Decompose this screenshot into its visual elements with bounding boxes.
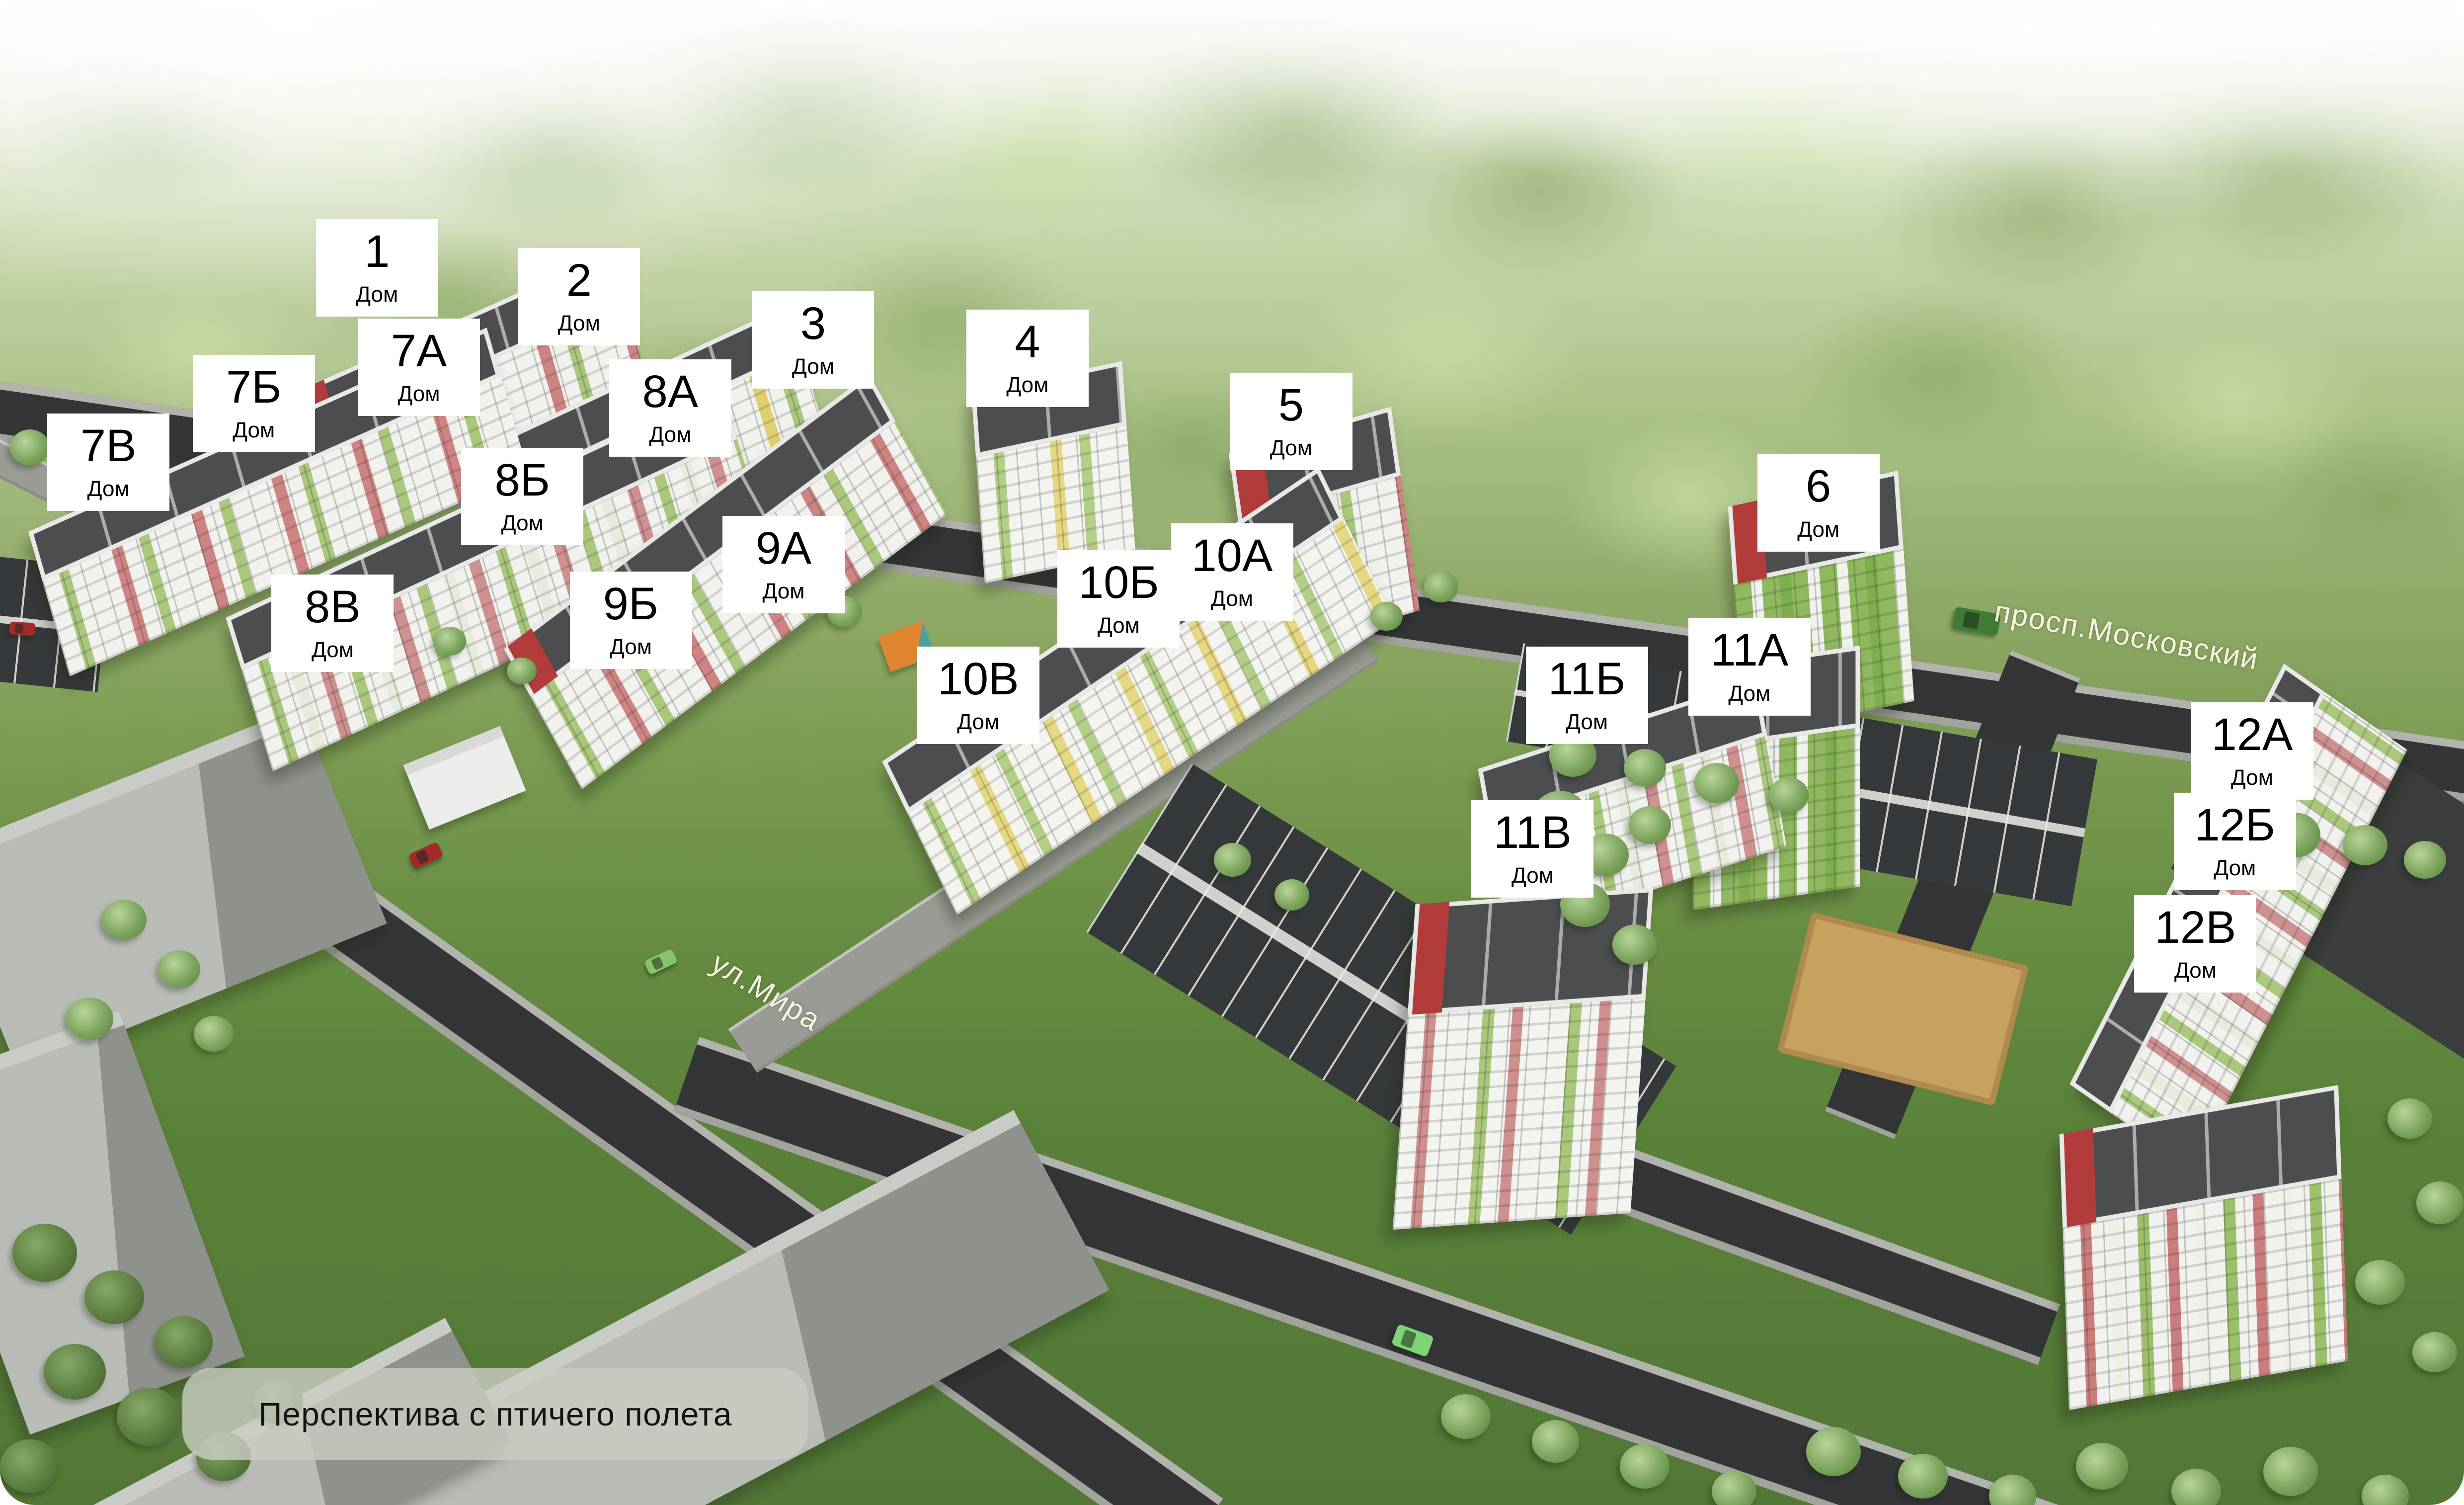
building-label-sub: Дом xyxy=(957,711,999,733)
tree xyxy=(2416,1181,2464,1224)
roof-red-accent xyxy=(2064,1128,2097,1227)
building-label-11A[interactable]: 11А Дом xyxy=(1688,618,1811,715)
building-label-sub: Дом xyxy=(792,356,834,378)
tree xyxy=(158,950,200,989)
tree xyxy=(1274,879,1309,911)
building-facade xyxy=(1393,998,1646,1230)
view-caption: Перспектива с птичего полета xyxy=(182,1368,808,1460)
building-label-number: 9А xyxy=(756,525,812,570)
building-label-9A[interactable]: 9А Дом xyxy=(722,515,845,613)
building-label-3[interactable]: 3 Дом xyxy=(752,291,874,389)
building-label-10A[interactable]: 10А Дом xyxy=(1171,523,1293,621)
building-label-10B[interactable]: 10Б Дом xyxy=(1057,550,1180,648)
building-label-number: 10А xyxy=(1192,533,1273,578)
tree xyxy=(2263,1447,2318,1496)
building-label-sub: Дом xyxy=(2214,857,2256,879)
building-label-4[interactable]: 4 Дом xyxy=(966,310,1089,407)
building-label-12B[interactable]: 12Б Дом xyxy=(2174,793,2296,890)
building-label-12V[interactable]: 12В Дом xyxy=(2134,895,2256,992)
tree xyxy=(0,1439,60,1493)
building-label-6[interactable]: 6 Дом xyxy=(1757,454,1880,551)
background-tree-clump xyxy=(2117,69,2455,279)
tree xyxy=(44,1344,106,1400)
building-label-number: 12А xyxy=(2212,712,2293,757)
building-label-sub: Дом xyxy=(1211,588,1253,610)
tree xyxy=(194,1016,234,1052)
building-label-sub: Дом xyxy=(87,478,130,500)
building-label-sub: Дом xyxy=(1728,682,1770,704)
tree xyxy=(10,429,50,465)
tree xyxy=(1629,806,1671,844)
building-label-sub: Дом xyxy=(1511,865,1554,887)
tree xyxy=(1694,763,1739,803)
building-label-9B[interactable]: 9Б Дом xyxy=(570,571,692,669)
building-label-sub: Дом xyxy=(610,636,652,658)
building-label-12A[interactable]: 12А Дом xyxy=(2191,702,2313,800)
tree xyxy=(1532,1420,1579,1463)
building-label-number: 7А xyxy=(391,329,447,373)
building-label-sub: Дом xyxy=(558,313,600,334)
building-label-sub: Дом xyxy=(1006,374,1048,396)
building-label-sub: Дом xyxy=(356,284,398,306)
building-label-8B[interactable]: 8Б Дом xyxy=(461,448,583,545)
tree xyxy=(1441,1394,1491,1439)
tree xyxy=(66,998,113,1040)
building-label-number: 12В xyxy=(2155,905,2236,949)
building-label-number: 8А xyxy=(642,369,699,414)
tree xyxy=(84,1270,144,1324)
building-label-number: 7Б xyxy=(226,364,282,409)
building-label-number: 9Б xyxy=(603,581,659,626)
tree xyxy=(2412,1332,2457,1372)
building-label-10V[interactable]: 10В Дом xyxy=(917,647,1039,744)
tree xyxy=(1769,777,1809,813)
building-label-number: 2 xyxy=(566,257,592,302)
tree xyxy=(2355,1260,2405,1305)
building-label-7B[interactable]: 7Б Дом xyxy=(193,354,315,452)
building-label-7V[interactable]: 7В Дом xyxy=(47,414,169,511)
tree xyxy=(156,1316,213,1368)
tree xyxy=(2387,1098,2432,1139)
tree xyxy=(1624,749,1666,787)
building-label-number: 11А xyxy=(1710,628,1788,672)
building-label-number: 11В xyxy=(1494,810,1572,855)
building-label-sub: Дом xyxy=(312,639,354,661)
building-label-number: 1 xyxy=(364,229,390,274)
building-label-sub: Дом xyxy=(1098,615,1140,637)
building-label-2[interactable]: 2 Дом xyxy=(518,248,640,345)
tree xyxy=(507,658,537,684)
building-label-11V[interactable]: 11В Дом xyxy=(1471,800,1593,898)
building-label-sub: Дом xyxy=(2231,767,2273,789)
car-red xyxy=(9,621,36,636)
building-label-sub: Дом xyxy=(1270,437,1312,459)
building-label-number: 10Б xyxy=(1078,560,1159,605)
building-label-number: 5 xyxy=(1278,383,1304,427)
building-label-number: 8В xyxy=(305,585,361,629)
building-label-11B[interactable]: 11Б Дом xyxy=(1526,647,1648,744)
building-label-number: 7В xyxy=(80,423,137,468)
tree xyxy=(2404,841,2446,879)
tree xyxy=(1612,924,1657,965)
building-label-sub: Дом xyxy=(398,383,440,405)
building-label-sub: Дом xyxy=(1797,518,1839,540)
building-label-5[interactable]: 5 Дом xyxy=(1230,373,1352,470)
building-label-8A[interactable]: 8А Дом xyxy=(609,359,731,457)
tree xyxy=(2343,825,2387,865)
building-label-sub: Дом xyxy=(501,512,544,534)
building-label-number: 4 xyxy=(1015,320,1040,364)
building-label-number: 10В xyxy=(938,657,1019,701)
building-label-sub: Дом xyxy=(649,424,691,446)
masterplan-render: ул.Мира просп.Московский 1 Дом 2 Дом 3 Д… xyxy=(0,0,2464,1505)
building-label-7A[interactable]: 7А Дом xyxy=(358,319,480,416)
building-label-sub: Дом xyxy=(762,581,804,602)
tree xyxy=(1424,571,1458,602)
tree xyxy=(1620,1444,1669,1489)
tree xyxy=(1214,843,1251,877)
tree xyxy=(1898,1454,1948,1499)
tree xyxy=(102,900,147,940)
tree xyxy=(1370,602,1403,631)
tree xyxy=(117,1388,181,1446)
tree xyxy=(1806,1427,1861,1476)
building-label-number: 11Б xyxy=(1548,657,1626,701)
building-label-8V[interactable]: 8В Дом xyxy=(271,575,394,672)
building-label-number: 8Б xyxy=(495,458,551,502)
building-label-number: 3 xyxy=(800,301,826,346)
building-label-1[interactable]: 1 Дом xyxy=(316,219,438,317)
building-label-sub: Дом xyxy=(2174,960,2217,982)
building-label-sub: Дом xyxy=(233,419,275,441)
building-label-number: 6 xyxy=(1806,464,1831,508)
tree xyxy=(2076,1443,2128,1490)
building-block xyxy=(2060,1085,2348,1410)
tree xyxy=(434,627,466,656)
background-tree-clump xyxy=(1789,280,2087,465)
building-label-sub: Дом xyxy=(1566,711,1608,733)
tree xyxy=(12,1224,77,1282)
building-label-number: 12Б xyxy=(2194,803,2275,847)
